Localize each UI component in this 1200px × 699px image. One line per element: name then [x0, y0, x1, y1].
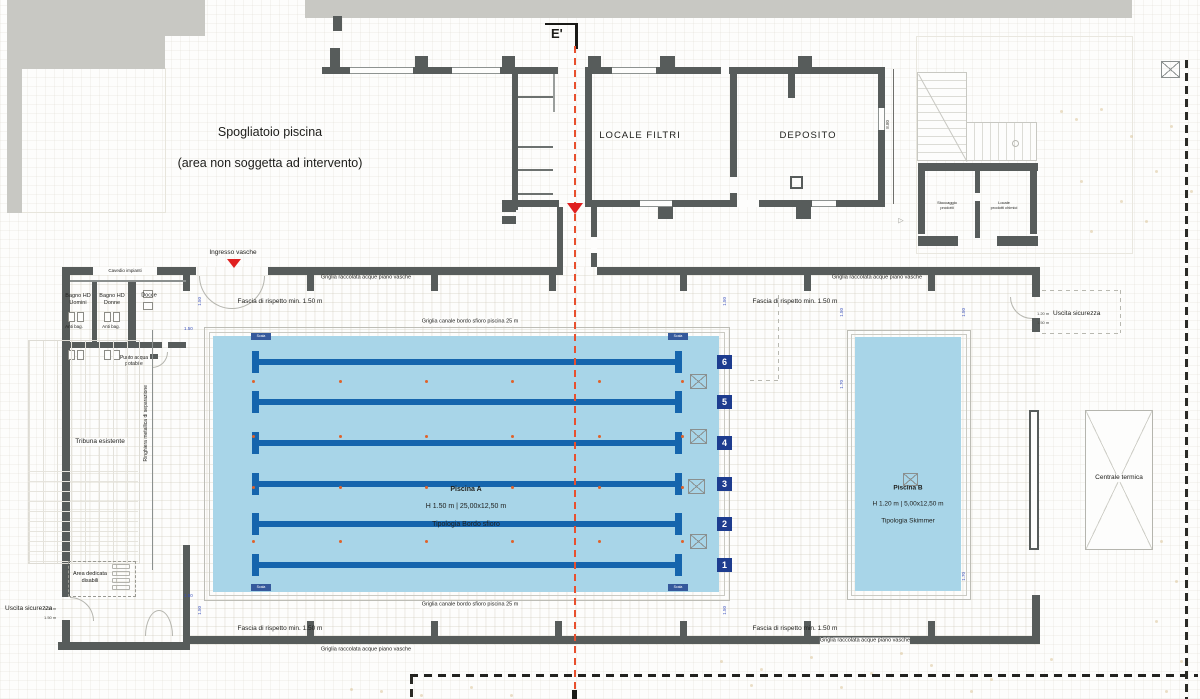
room-label-bagno-donne: Bagno HD Donne: [99, 293, 124, 307]
shower-fixture: [143, 302, 153, 310]
wc-fixture: [77, 312, 84, 322]
perimeter-wall: [597, 267, 1040, 275]
pillar-stub: [928, 275, 935, 291]
pool-a-name: Piscina A: [450, 486, 481, 493]
room-label-docce: Docce: [141, 293, 157, 300]
existing-area-strip: [7, 68, 22, 213]
boundary-dashed: [1042, 333, 1120, 334]
window: [640, 200, 672, 207]
lane-rope-cap: [252, 554, 259, 576]
dim-150: 1.50: [197, 606, 202, 615]
lane-number-badge: 2: [717, 517, 732, 531]
reference-line: [22, 212, 165, 213]
corridor-wall: [557, 207, 563, 267]
dim-150: 1.50: [722, 297, 727, 306]
site-boundary: [410, 674, 1198, 677]
pillar-stub: [658, 207, 673, 219]
pool-a-size: H 1.50 m | 25,00x12,50 m: [426, 503, 506, 510]
interior-wall: [168, 342, 186, 348]
nozzle-dot-row: [252, 380, 255, 383]
pillar-stub: [588, 56, 601, 67]
dim-150: 1.50: [961, 308, 966, 317]
dim-150: 1.50: [197, 297, 202, 306]
pillar-stub: [333, 16, 342, 31]
floor-drain: [790, 176, 803, 189]
partition-wall: [518, 169, 553, 171]
label-ingresso-vasche: Ingresso vasche: [209, 249, 256, 257]
pool-a-water: [213, 336, 719, 592]
label-fascia: Fascia di rispetto min. 1.50 m: [238, 625, 323, 633]
lane-rope-cap: [675, 432, 682, 454]
dim-170: 1.70: [961, 572, 966, 581]
wall-segment: [512, 74, 518, 210]
boundary-dashed: [778, 295, 779, 380]
lane-rope-cap: [675, 513, 682, 535]
pillar-stub: [928, 621, 935, 637]
lane-rope: [258, 440, 678, 446]
pillar-stub: [431, 621, 438, 637]
pool-b-name: Piscina B: [893, 485, 922, 492]
drain-marker: [690, 534, 707, 549]
lane-rope: [258, 399, 678, 405]
label-griglia-raccolta: Griglia raccolata acque piano vasche: [820, 638, 910, 645]
section-arrow: [567, 203, 583, 214]
label-griglia-raccolta: Griglia raccolata acque piano vasche: [832, 275, 922, 282]
perimeter-wall: [183, 636, 1040, 644]
wall-segment: [878, 67, 885, 207]
lane-rope-cap: [675, 473, 682, 495]
wall-stub: [788, 73, 795, 98]
lane-rope: [258, 359, 678, 365]
lane-rope-cap: [675, 554, 682, 576]
label-uscita-sicurezza-right: Uscita sicurezza: [1053, 310, 1100, 318]
nozzle-dot-row: [252, 435, 255, 438]
pillar-stub: [431, 275, 438, 291]
pillar-stub: [330, 48, 340, 67]
wheelchair-symbol: [112, 571, 130, 576]
note-line2: (area non soggetta ad intervento): [178, 156, 363, 170]
pillar-stub: [680, 621, 687, 637]
pillar-stub: [415, 56, 428, 67]
ladder-badge: Scala: [668, 584, 688, 591]
nozzle-dot-row: [252, 540, 255, 543]
door-opening: [721, 67, 729, 74]
perimeter-wall: [1032, 275, 1040, 297]
dim-150: 1.50: [839, 308, 844, 317]
wall-segment: [997, 236, 1038, 246]
pool-b-label: Piscina B H 1.20 m | 5,00x12,50 m Tipolo…: [872, 477, 943, 526]
partition-wall: [518, 193, 553, 195]
room-label-antibagno: Anti bag.: [65, 324, 83, 330]
dim-150: 1.50: [722, 606, 727, 615]
dimension-line: [893, 69, 894, 204]
existing-area-block: [7, 0, 205, 36]
perimeter-wall: [1032, 595, 1040, 636]
boundary-dashed: [1042, 290, 1120, 291]
drain-marker: [690, 374, 707, 389]
wall-segment: [918, 236, 958, 246]
section-marker-bar: [572, 690, 577, 699]
room-label-deposito: DEPOSITO: [780, 130, 837, 142]
room-label-filtri: LOCALE FILTRI: [599, 130, 680, 142]
label-griglia-raccolta: Griglia raccolata acque piano vasche: [321, 647, 411, 654]
lane-number-badge: 5: [717, 395, 732, 409]
lane-rope-cap: [675, 351, 682, 373]
window: [878, 108, 885, 130]
room-label-stoccaggio: Stoccaggio prodotti: [937, 200, 957, 210]
entry-arrow: ▷: [898, 218, 903, 227]
pool-b-water: [855, 337, 961, 591]
lane-rope-cap: [252, 473, 259, 495]
pool-b-type: Tipologia Skimmer: [881, 517, 935, 524]
existing-area-band: [305, 0, 1132, 18]
wall-segment: [918, 171, 925, 234]
wall-block: [502, 216, 516, 224]
partition-edge: [553, 74, 555, 112]
pilaster-wall: [1029, 410, 1039, 550]
window: [350, 67, 413, 74]
lane-number-badge: 1: [717, 558, 732, 572]
floor-plan: Spogliatoio piscina (area non soggetta a…: [0, 0, 1200, 699]
label-griglia-canale: Griglia canale bordo sfioro piscina 25 m: [420, 602, 521, 609]
pool-a-type: Tipologia Bordo sfioro: [432, 521, 500, 528]
wall-segment: [918, 163, 1038, 171]
dimension-label: 8.80: [885, 120, 890, 129]
lane-rope-cap: [675, 391, 682, 413]
drain-marker: [688, 479, 705, 494]
label-fascia: Fascia di rispetto min. 1.50 m: [238, 298, 323, 306]
door-opening: [591, 237, 597, 253]
non-intervention-note: Spogliatoio piscina (area non soggetta a…: [178, 109, 363, 172]
label-fascia: Fascia di rispetto min. 1.50 m: [753, 298, 838, 306]
lane-number-badge: 3: [717, 477, 732, 491]
lane-number-badge: 6: [717, 355, 732, 369]
pillar-stub: [680, 275, 687, 291]
exit-dimensions: 1.20 m 1.50 m: [44, 602, 56, 621]
site-boundary: [1185, 60, 1188, 699]
lane-rope-cap: [252, 351, 259, 373]
note-line1: Spogliatoio piscina: [218, 124, 322, 138]
partition-wall: [92, 282, 97, 344]
wheelchair-symbol: [112, 585, 130, 590]
pillar-stub: [555, 621, 562, 637]
perimeter-wall: [268, 267, 563, 275]
label-ringhiera: Ringhiera metallica di separazione: [143, 385, 149, 461]
wall-segment: [585, 67, 592, 207]
railing-line: [152, 330, 153, 570]
dividing-wall: [975, 171, 980, 193]
pillar-stub: [660, 56, 675, 67]
exit-dimensions: 1.20 m 1.50 m: [1037, 307, 1049, 326]
stair-diagonal: [918, 74, 967, 162]
wc-fixture: [113, 312, 120, 322]
partition-wall: [518, 96, 553, 98]
dividing-wall: [730, 67, 737, 177]
perimeter-wall: [157, 267, 196, 275]
dividing-wall: [730, 193, 737, 207]
staircase-landing: [966, 122, 1037, 161]
dim-150: 1.50: [184, 593, 193, 598]
drain-marker: [690, 429, 707, 444]
lane-rope: [258, 562, 678, 568]
dividing-wall: [975, 201, 980, 238]
pillar-stub: [183, 275, 190, 291]
partition-wall: [128, 282, 136, 344]
exit-dim-b: 1.50 m: [1037, 320, 1049, 325]
site-boundary: [410, 676, 413, 699]
label-griglia-raccolta: Griglia raccolata acque piano vasche: [321, 275, 411, 282]
wheelchair-symbol: [112, 564, 130, 569]
pillar-stub: [804, 275, 811, 291]
boundary-dashed: [1120, 290, 1121, 333]
staircase: [917, 72, 967, 161]
pillar-stub: [307, 275, 314, 291]
boundary-dashed: [750, 380, 778, 381]
pillar-stub: [796, 207, 811, 219]
dim-170: 1.70: [839, 380, 844, 389]
nozzle-dot-row: [252, 486, 255, 489]
room-label-cavedio: Cavedio impianti: [108, 268, 141, 274]
existing-area-block: [7, 36, 165, 69]
section-marker-label: E': [551, 26, 563, 42]
section-marker-bar: [545, 23, 577, 25]
window: [452, 67, 500, 74]
wc-fixture: [104, 312, 111, 322]
partition-wall: [518, 146, 553, 148]
exit-dim-b: 1.50 m: [44, 615, 56, 620]
dim-150: 1.50: [184, 326, 193, 331]
boundary-marker: [1161, 61, 1180, 78]
pillar-stub: [502, 56, 515, 67]
entry-marker: [227, 259, 241, 268]
ladder-badge: Scala: [668, 333, 688, 340]
reference-line: [165, 68, 166, 213]
wc-fixture: [68, 312, 75, 322]
wall-segment: [503, 200, 559, 207]
wheelchair-symbol: [112, 578, 130, 583]
door-opening: [737, 200, 759, 207]
vegetation-dots: [1060, 110, 1063, 113]
lane-rope-cap: [252, 391, 259, 413]
wall-segment: [1030, 171, 1037, 234]
grandstand-rows: [28, 462, 138, 562]
pillar-stub: [798, 56, 812, 67]
column-circle: [1012, 140, 1019, 147]
exit-dim-a: 1.20 m: [1037, 311, 1049, 316]
vegetation-dots: [720, 660, 723, 663]
pillar-stub: [549, 275, 556, 291]
room-label-chimici: Locale prodotti chimici: [991, 200, 1018, 210]
ladder-badge: Scala: [251, 333, 271, 340]
label-fascia: Fascia di rispetto min. 1.50 m: [753, 625, 838, 633]
room-label-bagno-uomini: Bagno HD Uomini: [65, 293, 90, 307]
label-centrale-termica: Centrale termica: [1094, 474, 1144, 482]
room-label-antibagno: Anti bag.: [102, 324, 120, 330]
window: [812, 200, 836, 207]
label-area-disabili: Area dedicata disabili: [73, 571, 107, 585]
lane-rope-cap: [252, 513, 259, 535]
perimeter-wall: [58, 642, 190, 650]
label-griglia-canale: Griglia canale bordo sfioro piscina 25 m: [420, 319, 521, 326]
exit-dim-a: 1.20 m: [44, 606, 56, 611]
section-cut-line: [574, 46, 576, 699]
vegetation-dots: [350, 688, 353, 691]
perimeter-wall: [62, 267, 93, 275]
label-tribuna: Tribuna esistente: [73, 438, 127, 446]
ladder-badge: Scala: [251, 584, 271, 591]
lane-number-badge: 4: [717, 436, 732, 450]
window: [612, 67, 656, 74]
pool-b-size: H 1.20 m | 5,00x12,50 m: [872, 501, 943, 508]
pool-a-label: Piscina A H 1.50 m | 25,00x12,50 m Tipol…: [426, 477, 506, 530]
